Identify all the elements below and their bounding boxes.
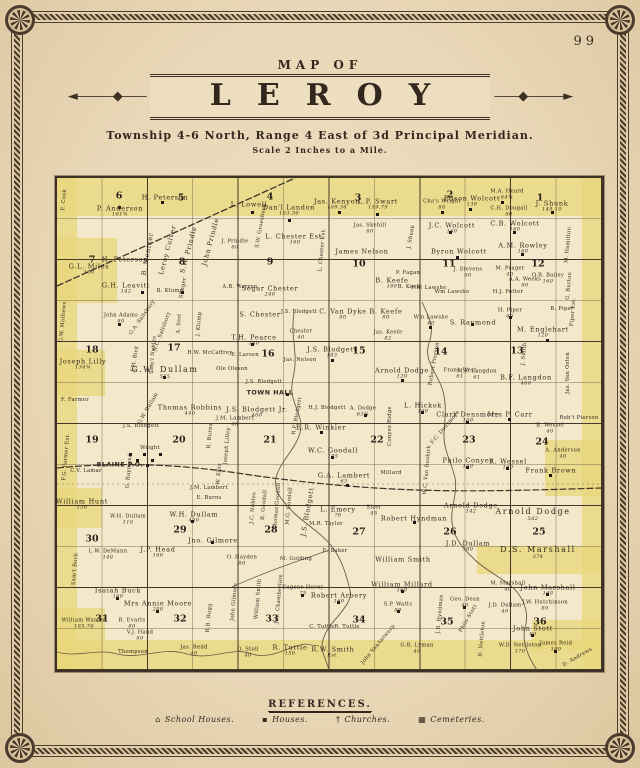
map-label: E. Larsen xyxy=(231,353,259,359)
acreage-value: 80 xyxy=(369,316,402,322)
acreage-value: 63¾ xyxy=(350,412,376,418)
acreage-value: 109.36 xyxy=(314,206,360,212)
section-number: 2 xyxy=(447,190,454,201)
map-label: S. Raymond xyxy=(450,319,496,326)
map-label: John Gilmore xyxy=(230,583,239,622)
map-label: R. Burns xyxy=(207,423,215,449)
section-number: 32 xyxy=(173,614,186,625)
map-label: J.P. Head160 xyxy=(140,547,175,560)
map-label: Robert Arbery160 xyxy=(311,593,367,606)
acreage-value: 80 xyxy=(354,229,387,235)
map-label: Leroy Culver xyxy=(158,224,178,275)
map-label: P. Anderson161¾ xyxy=(97,206,143,219)
map-label: H.J. Potter xyxy=(493,290,524,296)
map-label: E.R. Winkler xyxy=(296,424,346,431)
school-house-icon: ⌂ xyxy=(155,715,161,724)
acreage-value: 170 xyxy=(499,649,542,655)
section-number: 22 xyxy=(370,435,383,446)
house-symbol xyxy=(441,211,444,214)
acreage-value: 134¾ xyxy=(60,366,107,372)
title-banner: ◄―――◆―― LEROY ――◆―――► xyxy=(150,74,490,120)
map-label: W.H. Dullam110 xyxy=(110,514,146,525)
map-label: Arnold Dodge562 xyxy=(495,508,570,522)
acreage-value: 80 xyxy=(454,273,483,279)
legend-item: ⌂School Houses. xyxy=(155,715,234,724)
legend-item-label: Cemeteries. xyxy=(430,715,484,724)
section-number: 17 xyxy=(167,343,180,354)
map-label: O. Stoll40 xyxy=(237,647,259,658)
shaded-parcel xyxy=(582,178,602,670)
section-number: 6 xyxy=(116,191,123,202)
map-label: V.J. Hand80 xyxy=(127,630,153,641)
section-number: 3 xyxy=(355,193,362,204)
map-label: BLAINE P.O. xyxy=(97,463,144,470)
map-label: William Smith xyxy=(254,578,263,619)
acreage-value: 160 xyxy=(265,241,325,247)
map-label: J. Klump xyxy=(196,312,204,337)
section-number: 35 xyxy=(440,617,453,628)
map-label: C. Van Dyke80 xyxy=(319,309,366,322)
map-label: A. Dodge63¾ xyxy=(350,406,376,417)
section-number: 12 xyxy=(531,259,544,270)
map-label: Dan'l Landon153.36 xyxy=(263,205,315,218)
acreage-value: Est. xyxy=(311,654,354,660)
map-label: J.B. Hyndman xyxy=(436,594,445,634)
map-label: John Prindle xyxy=(201,217,221,266)
map-title: LEROY xyxy=(184,78,456,113)
house-symbol xyxy=(159,453,162,456)
map-label: A. Anderson40 xyxy=(545,448,580,459)
map-label: B. Wessel40 xyxy=(536,423,564,434)
map-label: J.C. Nobles xyxy=(250,492,258,524)
acreage-value: 63 xyxy=(318,480,370,486)
map-label: B. Mentzer xyxy=(141,232,156,276)
map-label: J.S. Blodgett183 xyxy=(307,347,357,360)
map-label: G. Raymond xyxy=(126,453,135,488)
acreage-value: 82 xyxy=(374,336,403,342)
acreage-value: 100 xyxy=(540,647,572,653)
map-label: Mrs Annie Moore280 xyxy=(124,601,192,614)
map-label: Isaiah Buck160 xyxy=(95,588,141,601)
church-icon: † xyxy=(336,715,341,724)
map-label: Piper Est. xyxy=(570,297,578,326)
map-label: J.S. Blodgett xyxy=(300,487,316,537)
map-label: C.B. Wolcott160 xyxy=(490,221,539,234)
section-number: 26 xyxy=(443,527,456,538)
acreage-value: 60 xyxy=(498,314,522,320)
legend-items: ⌂School Houses.▪Houses.†Churches.▦Cemete… xyxy=(0,715,640,724)
map-label: L.P. Swart159.79 xyxy=(358,199,398,212)
legend-item-label: Houses. xyxy=(272,715,308,724)
acreage-value: 440 xyxy=(158,412,222,418)
map-label: R. Goodall xyxy=(261,490,269,521)
section-number: 19 xyxy=(85,435,98,446)
plat-map-page: { "page": {"number": "99"}, "title": { "… xyxy=(0,0,640,768)
map-label: Rob't Pierson xyxy=(559,416,598,422)
house-symbol xyxy=(151,459,154,462)
acreage-value: 40 xyxy=(545,454,580,460)
map-label: Jas. Kenyon109.36 xyxy=(314,199,360,212)
map-label: Wm Lawshe xyxy=(435,290,470,296)
section-number: 28 xyxy=(264,525,277,536)
acreage-value: 150 xyxy=(273,652,308,658)
map-label: Wright xyxy=(140,446,160,452)
map-label: Mrs P. Carr xyxy=(487,411,532,418)
section-number: 36 xyxy=(533,617,546,628)
section-number: 33 xyxy=(265,614,278,625)
map-label: R. Evarts80 xyxy=(119,618,146,629)
acreage-value: 80 xyxy=(513,633,553,639)
map-label: L. Chester Est.160 xyxy=(265,234,325,247)
map-label: Arnold Dodge120 xyxy=(375,368,429,381)
corner-rosette-icon xyxy=(605,5,635,35)
acreage-value: 40 xyxy=(489,609,522,615)
map-label: Philo Conyes140 xyxy=(442,458,493,471)
acreage-value: 160 xyxy=(140,554,175,560)
house-symbol xyxy=(146,464,149,467)
map-label: M. Englehart120 xyxy=(517,327,569,340)
acreage-value: 160 xyxy=(520,592,575,598)
map-label: Sizer45 xyxy=(367,505,382,516)
map-of-kicker: MAP OF xyxy=(0,58,640,72)
section-number: 25 xyxy=(532,527,545,538)
corner-rosette-icon xyxy=(5,5,35,35)
acreage-value: 149.10 xyxy=(536,208,569,214)
section-number: 29 xyxy=(173,525,186,536)
map-label: Thomas Goodall xyxy=(273,483,283,530)
map-label: B. Klump xyxy=(157,289,184,295)
map-label: J. Stevens80 xyxy=(454,267,483,278)
acreage-value: 142 xyxy=(444,510,498,516)
references-legend: REFERENCES. ⌂School Houses.▪Houses.†Chur… xyxy=(0,692,640,724)
map-label: W.D. Nettleton170 xyxy=(499,643,542,654)
acreage-value: 140 xyxy=(89,555,128,561)
map-label: G. Burton xyxy=(566,272,574,301)
township-subtitle: Township 4-6 North, Range 4 East of 3d P… xyxy=(0,129,640,142)
title-block: MAP OF ◄―――◆―― LEROY ――◆―――► Township 4-… xyxy=(0,54,640,155)
map-label: G.B. Lyman40 xyxy=(400,643,433,654)
acreage-value: 40 xyxy=(290,335,313,341)
section-number: 34 xyxy=(352,615,365,626)
section-number: 23 xyxy=(462,435,475,446)
map-label: L. Chester Est. xyxy=(318,228,328,272)
map-label: J.S. Blodgett xyxy=(246,380,282,386)
legend-item: ▦Cemeteries. xyxy=(418,715,484,724)
map-label: William Millard160 xyxy=(371,582,433,595)
map-label: R.W. McCaffrey xyxy=(187,351,232,357)
map-label: P. Fagan xyxy=(396,271,420,277)
map-label: E. Burns xyxy=(196,496,221,502)
map-label: M. Hamilton xyxy=(565,227,574,264)
acreage-value: 374 xyxy=(500,555,576,561)
acreage-value: 80 xyxy=(522,606,568,612)
plat-map: F. CookP. Anderson161¾H. PetersonG.L. Mi… xyxy=(55,176,604,672)
map-label: B.F. Langdon460 xyxy=(500,375,552,388)
section-number: 8 xyxy=(179,257,186,268)
map-label: L.W. DeMunn140 xyxy=(89,549,128,560)
acreage-value: 80 xyxy=(127,636,153,642)
house-symbol xyxy=(338,211,341,214)
house-symbol xyxy=(376,213,379,216)
house-symbol xyxy=(546,339,549,342)
acreage-value: 240 xyxy=(242,293,299,299)
acreage-value: 80 xyxy=(414,321,449,327)
map-label: Ole Oleson xyxy=(216,367,248,373)
acreage-value: 153.36 xyxy=(263,212,315,218)
map-label: John Adams80 xyxy=(104,313,138,324)
map-label: Wm Lawshe80 xyxy=(414,315,449,326)
banner-arrow-left-icon: ◄―――◆―― xyxy=(68,89,146,104)
map-label: J.D. Dullam360 xyxy=(446,541,491,554)
section-number: 11 xyxy=(442,259,455,270)
house-symbol xyxy=(501,201,504,204)
acreage-value: 160 xyxy=(489,466,527,472)
map-label: H.J. Blodgett xyxy=(308,406,346,412)
acreage-value: 555 xyxy=(131,375,198,381)
map-label: Arnold Dodge142 xyxy=(444,503,498,516)
section-number: 31 xyxy=(95,614,108,625)
corner-rosette-icon xyxy=(605,733,635,763)
section-number: 10 xyxy=(352,259,365,270)
map-label: L. Emery76 xyxy=(320,507,356,520)
acreage-value: 280 xyxy=(124,608,192,614)
section-number: 24 xyxy=(535,437,548,448)
map-label: Millard xyxy=(380,471,401,477)
house-symbol xyxy=(469,208,472,211)
map-label: M.R. Taylor xyxy=(309,522,343,528)
map-label: J.D. Dullam40 xyxy=(489,603,522,614)
section-number: 13 xyxy=(510,346,523,357)
section-number: 14 xyxy=(434,347,447,358)
map-label: TOWN HALL xyxy=(247,391,294,398)
map-label: M.G. Goodall xyxy=(285,487,294,525)
map-label: J.C. Wolcott160 xyxy=(429,223,475,236)
map-label: J.M. Lambert xyxy=(190,486,228,492)
map-label: W.C. Goodall105 xyxy=(308,448,358,461)
map-label: Joseph Lilley xyxy=(224,427,233,465)
section-number: 9 xyxy=(267,257,274,268)
acreage-value: 120 xyxy=(517,334,569,340)
acreage-value: 160 xyxy=(429,230,475,236)
legend-title: REFERENCES. xyxy=(268,699,372,712)
acreage-value: 40 xyxy=(400,649,433,655)
map-label: C. Tuttle xyxy=(309,625,334,631)
map-label: Byron Wolcott xyxy=(431,248,487,255)
map-label: John Stott80 xyxy=(513,626,553,639)
acreage-value: 45 xyxy=(367,511,382,517)
acreage-value: 360 xyxy=(446,548,491,554)
map-label: Jas. Skehill80 xyxy=(354,223,387,234)
page-number: 99 xyxy=(573,34,598,49)
map-label: James Nelson xyxy=(335,248,388,255)
acreage-value: 76 xyxy=(320,514,356,520)
map-label: Thomas Robbins440 xyxy=(158,405,222,418)
acreage-value: 80 xyxy=(222,245,249,251)
corner-rosette-icon xyxy=(5,733,35,763)
acreage-value: 160 xyxy=(371,589,433,595)
section-number: 20 xyxy=(172,435,185,446)
section-number: 16 xyxy=(261,349,274,360)
acreage-value: 142 xyxy=(102,290,150,296)
map-label: G.H. Leavitt142 xyxy=(102,283,150,296)
acreage-value: 130 xyxy=(56,506,108,512)
legend-item-label: School Houses. xyxy=(165,715,234,724)
house-symbol xyxy=(143,453,146,456)
acreage-value: 120 xyxy=(375,375,429,381)
house-symbol xyxy=(331,359,334,362)
map-label: Frank Brown xyxy=(526,467,577,474)
map-label: C.H. Dougall80 xyxy=(490,206,527,217)
map-label: O. Hayden80 xyxy=(227,555,257,566)
map-label: J.S. Blodgett xyxy=(281,310,317,316)
map-label: O.R. Bailey160 xyxy=(532,273,564,284)
map-label: R. Tuttle xyxy=(334,625,360,631)
map-label: T.H. Pearce140 xyxy=(231,335,276,348)
map-label: S. Chester xyxy=(239,311,280,318)
acreage-value: 110 xyxy=(110,520,146,526)
cemetery-icon: ▦ xyxy=(418,715,426,724)
acreage-value: 160 xyxy=(69,271,109,277)
acreage-value: 160 xyxy=(498,250,547,256)
acreage-value: 61 xyxy=(457,375,497,381)
acreage-value: 160 xyxy=(532,279,564,285)
legend-item: ▪Houses. xyxy=(262,715,308,724)
acreage-value: 40 xyxy=(216,422,254,428)
house-symbol xyxy=(251,211,254,214)
section-number: 30 xyxy=(85,534,98,545)
map-label: A.M. Rowley160 xyxy=(498,243,547,256)
map-label: M.F. Langdon61 xyxy=(457,369,497,380)
legend-item: †Churches. xyxy=(336,715,390,724)
map-label: Jno. Gilmore xyxy=(188,537,238,544)
map-label: S.P. Watts80 xyxy=(384,602,413,613)
acreage-value: 430 xyxy=(170,519,219,525)
map-label: Sam'l Buck xyxy=(72,553,81,586)
map-label: William Hunt130 xyxy=(56,499,108,512)
acreage-value: 159.79 xyxy=(358,206,398,212)
map-label: W.C. Van Buskirk xyxy=(423,445,433,495)
map-label: G.L. Miles160 xyxy=(69,264,109,277)
map-label: J.W. Hutchinson80 xyxy=(522,600,568,611)
map-label: W. Ellis xyxy=(216,463,224,485)
map-label: Jas. Keefe82 xyxy=(374,330,403,341)
section-number: 18 xyxy=(85,345,98,356)
acreage-value: 80 xyxy=(384,608,413,614)
map-label: A. Serl xyxy=(176,314,183,334)
legend-item-label: Churches. xyxy=(345,715,391,724)
map-label: Thompson xyxy=(118,650,148,656)
map-scale: Scale 2 Inches to a Mile. xyxy=(0,145,640,155)
map-label: R.B. Rugg xyxy=(206,603,214,633)
map-label: James Reid100 xyxy=(540,641,572,652)
section-number: 7 xyxy=(89,255,96,266)
acreage-value: 40 xyxy=(180,651,207,657)
acreage-value: 80 xyxy=(319,316,366,322)
map-label: M.A. Heard64¾ xyxy=(490,189,524,200)
map-label: Jas. Redd40 xyxy=(180,645,207,656)
map-label: H. Piper60 xyxy=(498,308,522,319)
acreage-value: 140 xyxy=(442,465,493,471)
acreage-value: 460 xyxy=(500,382,552,388)
acreage-value: 105 xyxy=(308,455,358,461)
map-label: J.M. Lambert40 xyxy=(216,416,254,427)
house-icon: ▪ xyxy=(262,715,268,724)
map-label: R. Wessel160 xyxy=(489,459,527,472)
acreage-value: 160 xyxy=(311,600,367,606)
section-number: 5 xyxy=(178,193,185,204)
map-label: C.V. Lamar xyxy=(70,469,102,475)
map-label: Segar Chester240 xyxy=(242,286,299,299)
map-label: B. Keefe80 xyxy=(369,309,402,322)
map-label: F. Farmer xyxy=(61,398,89,404)
acreage-value: 183 xyxy=(307,354,357,360)
map-label: G.A. Lambert63 xyxy=(318,473,370,486)
house-symbol xyxy=(456,256,459,259)
map-label: R. Tuttle150 xyxy=(273,645,308,658)
map-label: Robert Hyndman xyxy=(381,515,447,522)
acreage-value: 185.76 xyxy=(61,624,106,630)
acreage-value: 140 xyxy=(231,342,276,348)
acreage-value: 160 xyxy=(436,419,499,425)
banner-arrow-right-icon: ――◆―――► xyxy=(494,89,572,104)
map-label: J. Prindle80 xyxy=(222,239,249,250)
map-label: J. Shunk xyxy=(407,225,417,250)
map-label: D.S. Marshall374 xyxy=(500,546,576,560)
acreage-value: 40 xyxy=(536,429,564,435)
map-label: Jas. Van Osten xyxy=(566,352,572,394)
acreage-value: 161¾ xyxy=(97,213,143,219)
section-number: 21 xyxy=(263,435,276,446)
map-label: William Smith xyxy=(375,556,431,563)
section-number: 1 xyxy=(537,193,544,204)
acreage-value: 80 xyxy=(490,212,527,218)
section-number: 4 xyxy=(267,192,274,203)
map-label: E. Baker xyxy=(322,549,347,555)
map-label: W.H. Dullam430 xyxy=(170,512,219,525)
section-number: 27 xyxy=(352,527,365,538)
acreage-value: 562 xyxy=(495,517,570,523)
map-label: Chester40 xyxy=(290,329,313,340)
acreage-value: 80 xyxy=(227,561,257,567)
map-label: John Marshall160 xyxy=(520,585,575,598)
map-label: Conyes Ridge xyxy=(388,406,394,446)
acreage-value: 160 xyxy=(490,228,539,234)
section-number: 15 xyxy=(352,346,365,357)
map-label: M. Golding xyxy=(280,557,312,563)
map-label: R.W. SmithEst. xyxy=(311,647,354,660)
acreage-value: 40 xyxy=(237,653,259,659)
map-label: Joseph Lilly134¾ xyxy=(60,359,107,372)
acreage-value: 64¾ xyxy=(490,195,524,201)
map-label: G.W. Dullam555 xyxy=(131,366,198,380)
house-symbol xyxy=(288,219,291,222)
